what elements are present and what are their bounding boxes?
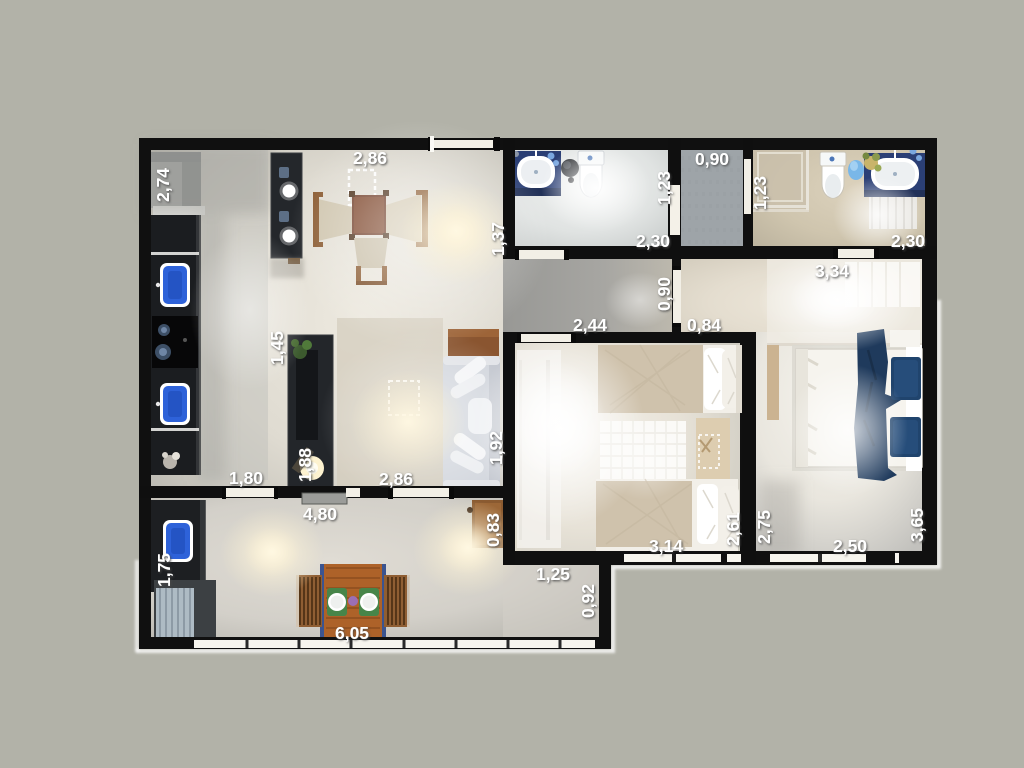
svg-text:1,88: 1,88 [295, 448, 315, 482]
svg-text:0,83: 0,83 [483, 513, 503, 547]
svg-text:2,30: 2,30 [636, 231, 670, 251]
svg-text:2,75: 2,75 [754, 510, 774, 544]
svg-text:2,44: 2,44 [573, 315, 607, 335]
svg-text:2,86: 2,86 [353, 148, 387, 168]
svg-text:1,80: 1,80 [229, 468, 263, 488]
svg-text:1,45: 1,45 [267, 331, 287, 365]
svg-text:0,84: 0,84 [687, 315, 721, 335]
svg-text:3,14: 3,14 [649, 536, 683, 556]
svg-text:1,23: 1,23 [654, 171, 674, 205]
svg-text:6,05: 6,05 [335, 623, 369, 643]
svg-text:1,23: 1,23 [750, 176, 770, 210]
svg-text:3,34: 3,34 [815, 261, 849, 281]
svg-text:0,90: 0,90 [695, 149, 729, 169]
svg-text:2,50: 2,50 [833, 536, 867, 556]
svg-text:2,30: 2,30 [891, 231, 925, 251]
svg-text:1,25: 1,25 [536, 564, 570, 584]
svg-text:2,86: 2,86 [379, 469, 413, 489]
svg-text:4,80: 4,80 [303, 504, 337, 524]
svg-text:0,90: 0,90 [654, 277, 674, 311]
svg-text:2,61: 2,61 [723, 512, 743, 546]
svg-text:2,74: 2,74 [153, 168, 173, 202]
svg-text:1,75: 1,75 [154, 553, 174, 587]
svg-text:0,92: 0,92 [578, 584, 598, 618]
svg-text:3,65: 3,65 [907, 508, 927, 542]
svg-text:1,92: 1,92 [486, 431, 506, 465]
svg-text:1,37: 1,37 [488, 222, 508, 256]
